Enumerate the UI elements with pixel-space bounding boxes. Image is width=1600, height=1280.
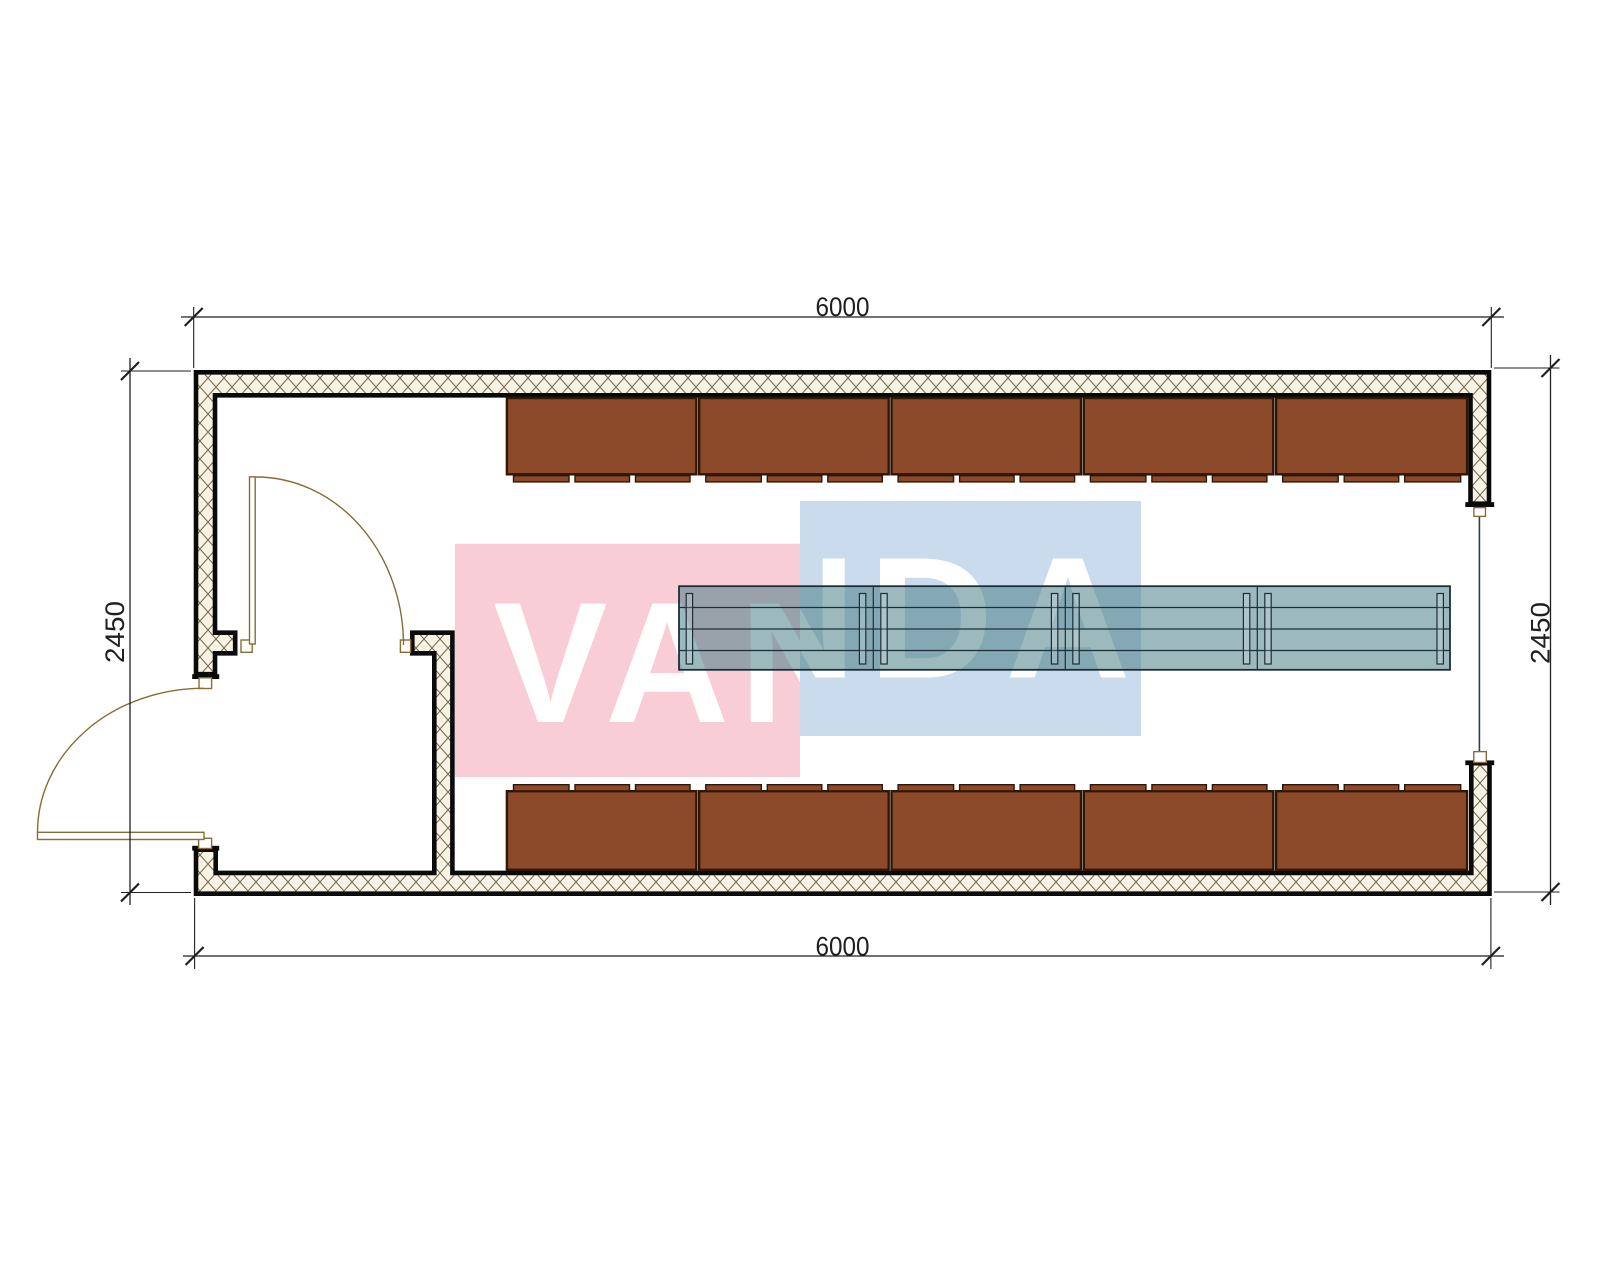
svg-text:6000: 6000	[816, 932, 870, 962]
svg-text:2450: 2450	[100, 601, 130, 663]
svg-text:2450: 2450	[1526, 602, 1556, 664]
svg-text:6000: 6000	[816, 292, 870, 322]
